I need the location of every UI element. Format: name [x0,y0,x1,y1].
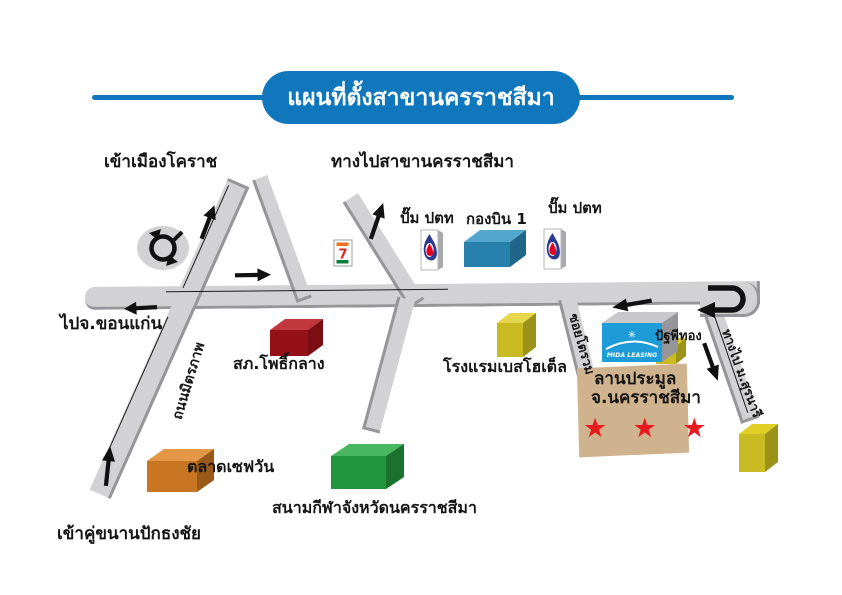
label-enter-pak-thong-chai: เข้าคู่ขนานปักธงชัย [57,525,201,545]
police-station-building [270,319,323,356]
u-turn-arrowhead [697,302,715,318]
label-ptt-left: ปั๊ม ปตท [400,210,454,227]
page-title: แผนที่ตั้งสาขานครราชสีมา [287,80,554,116]
road-south-stub [362,297,415,434]
branch-sign-text: MIDA LEASING [607,352,658,359]
shade-overlay [270,330,308,356]
seven-eleven-logo: 7 [338,248,347,263]
label-police-station: สภ.โพธิ์กลาง [233,355,325,373]
seven-stripe-orange [337,243,349,247]
sign-side [438,230,443,270]
label-auction-line2: จ.นครราชสีมา [591,389,701,409]
seven-eleven-sign: 7 [333,239,353,267]
label-patthaphi-thong: ปัฐพีทอง [655,330,702,345]
southeast-yellow-building [739,424,778,472]
ptt-pump-sign-left [419,227,445,271]
label-save-one: ตลาดเซฟวัน [187,458,274,476]
shade-overlay [331,456,386,489]
branch-logo-icon: ✳ [628,330,636,341]
shade-overlay [497,323,523,357]
label-to-khonkaen: ไปจ.ขอนแก่น [60,315,162,335]
label-auction-line1: ลานประมูล [594,370,676,390]
label-to-branch: ทางไปสาขานครราชสีมา [331,153,514,173]
label-stadium: สนามกีฬาจังหวัดนครราชสีมา [272,499,477,517]
wing1-building [464,230,526,267]
label-best-hotel: โรงแรมเบสโฮเต็ล [443,358,567,376]
label-wing1: กองบิน 1 [466,211,527,228]
shade-overlay [464,242,510,267]
label-ptt-right: ปั๊ม ปตท [548,200,602,217]
road-city-branch-upper [252,175,311,303]
map-canvas: แผนที่ตั้งสาขานครราชสีมา [0,0,842,595]
auction-stars-icon: ★ ★ ★ [583,413,714,444]
roundabout-icon [136,224,192,272]
label-enter-korat: เข้าเมืองโคราช [104,153,217,173]
ptt-pump-sign-right [542,226,568,270]
stadium-building [331,444,404,489]
u-turn-arrow-icon [690,276,762,324]
sign-side [561,229,566,269]
best-hotel-building [497,313,536,357]
arrow-right-main-icon [235,268,271,283]
shade-overlay [739,434,765,472]
title-banner: แผนที่ตั้งสาขานครราชสีมา [262,71,580,124]
